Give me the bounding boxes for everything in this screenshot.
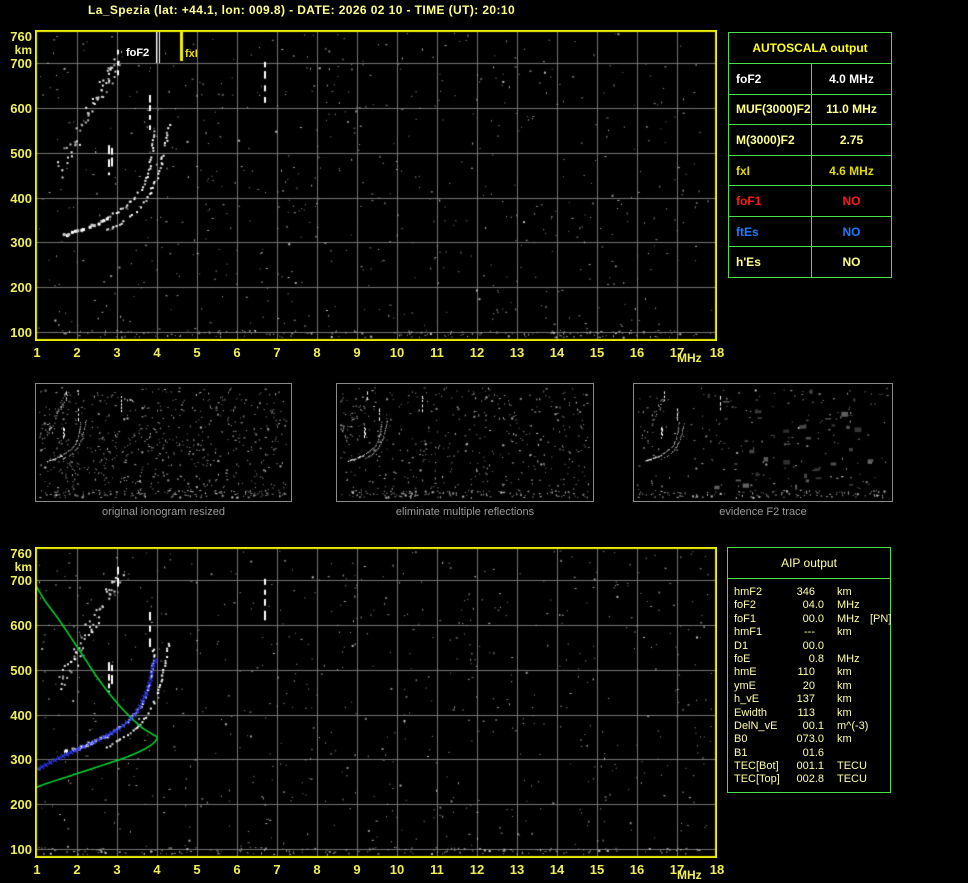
x-tick-top-14: 14 bbox=[545, 345, 569, 360]
aip-val: 002.8 bbox=[791, 773, 824, 786]
y-tick-top-600: 600 bbox=[0, 101, 32, 116]
x-tick-top-5: 5 bbox=[185, 345, 209, 360]
aip-row-B1: B101.6 bbox=[734, 747, 890, 760]
aip-lab: h_vE bbox=[734, 693, 791, 706]
x-tick-bottom-3: 3 bbox=[105, 862, 129, 877]
thumbnail-eliminate-reflections bbox=[336, 383, 594, 502]
aip-lab: ymE bbox=[734, 680, 791, 693]
x-tick-bottom-4: 4 bbox=[145, 862, 169, 877]
y-tick-top-100: 100 bbox=[0, 325, 32, 340]
autoscala-param-label: foF2 bbox=[729, 64, 812, 94]
thumbnail-evidence-canvas bbox=[634, 384, 892, 501]
aip-unit bbox=[824, 640, 868, 653]
autoscala-row-fxI: fxI4.6 MHz bbox=[729, 155, 891, 186]
autoscala-screen: La_Spezia (lat: +44.1, lon: 009.8) - DAT… bbox=[0, 0, 968, 883]
aip-val pad: 137 bbox=[791, 693, 824, 706]
x-tick-bottom-5: 5 bbox=[185, 862, 209, 877]
x-tick-top-9: 9 bbox=[345, 345, 369, 360]
autoscala-param-label: ftEs bbox=[729, 217, 812, 247]
thumbnail-original-ionogram bbox=[35, 383, 292, 502]
aip-lab: B1 bbox=[734, 747, 791, 760]
aip-unit: MHz bbox=[824, 599, 868, 612]
y-unit-bottom: km bbox=[0, 560, 32, 574]
y-tick-bottom-300: 300 bbox=[0, 752, 32, 767]
x-tick-bottom-13: 13 bbox=[505, 862, 529, 877]
x-tick-bottom-18: 18 bbox=[705, 862, 729, 877]
caption-evidence-f2: evidence F2 trace bbox=[633, 506, 893, 518]
autoscala-param-value: NO bbox=[812, 247, 891, 277]
y-tick-bottom-600: 600 bbox=[0, 618, 32, 633]
autoscala-param-value: 4.0 MHz bbox=[812, 64, 891, 94]
aip-row-TECTop: TEC[Top]002.8TECU bbox=[734, 773, 890, 786]
aip-unit: km bbox=[824, 586, 868, 599]
autoscala-output-panel: AUTOSCALA output foF24.0 MHzMUF(3000)F21… bbox=[728, 32, 892, 278]
autoscala-param-label: M(3000)F2 bbox=[729, 125, 812, 155]
aip-val: 00.0 bbox=[791, 640, 824, 653]
aip-row-Ewidth: Ewidth113km bbox=[734, 707, 890, 720]
aip-output-title: AIP output bbox=[728, 548, 890, 579]
thumbnail-evidence-f2 bbox=[633, 383, 893, 502]
ionogram-plot-canvas bbox=[35, 30, 717, 341]
aip-note: [PN] bbox=[868, 613, 891, 626]
aip-lab: hmF1 bbox=[734, 626, 791, 639]
aip-lab: Ewidth bbox=[734, 707, 791, 720]
autoscala-row-foF2: foF24.0 MHz bbox=[729, 63, 891, 94]
page-title: La_Spezia (lat: +44.1, lon: 009.8) - DAT… bbox=[88, 3, 515, 17]
autoscala-row-M3000F2: M(3000)F22.75 bbox=[729, 124, 891, 155]
aip-row-hmE: hmE110km bbox=[734, 666, 890, 679]
x-tick-bottom-16: 16 bbox=[625, 862, 649, 877]
x-tick-bottom-2: 2 bbox=[65, 862, 89, 877]
aip-row-hmF2: hmF2346km bbox=[734, 586, 890, 599]
aip-lab: hmE bbox=[734, 666, 791, 679]
aip-lab: foE bbox=[734, 653, 791, 666]
aip-val pad: --- bbox=[791, 626, 824, 639]
aip-row-foF2: foF204.0MHz bbox=[734, 599, 890, 612]
aip-output-panel: AIP output hmF2346kmfoF204.0MHzfoF100.0M… bbox=[727, 547, 891, 793]
autoscala-param-value: NO bbox=[812, 217, 891, 247]
autoscala-param-label: foF1 bbox=[729, 186, 812, 216]
thumbnail-original-canvas bbox=[36, 384, 291, 501]
aip-lab: TEC[Bot] bbox=[734, 760, 791, 773]
foF2-marker-label: foF2 bbox=[126, 47, 149, 59]
aip-unit: km bbox=[824, 680, 868, 693]
y-tick-top-700: 700 bbox=[0, 56, 32, 71]
aip-unit: TECU bbox=[824, 773, 868, 786]
aip-unit: MHz bbox=[824, 613, 868, 626]
y-tick-bottom-700: 700 bbox=[0, 573, 32, 588]
y-tick-bottom-100: 100 bbox=[0, 842, 32, 857]
aip-lab: DelN_vE bbox=[734, 720, 791, 733]
autoscala-row-MUF3000F2: MUF(3000)F211.0 MHz bbox=[729, 94, 891, 125]
aip-unit: m^(-3) bbox=[824, 720, 868, 733]
aip-row-B0: B0073.0km bbox=[734, 733, 890, 746]
x-tick-top-1: 1 bbox=[25, 345, 49, 360]
y-tick-bottom-400: 400 bbox=[0, 708, 32, 723]
x-tick-top-13: 13 bbox=[505, 345, 529, 360]
caption-original-ionogram: original ionogram resized bbox=[35, 506, 292, 518]
aip-val: 00.0 bbox=[791, 613, 824, 626]
aip-val: 001.1 bbox=[791, 760, 824, 773]
aip-val pad: 110 bbox=[791, 666, 824, 679]
aip-lab: TEC[Top] bbox=[734, 773, 791, 786]
x-tick-bottom-7: 7 bbox=[265, 862, 289, 877]
autoscala-param-value: 4.6 MHz bbox=[812, 156, 891, 186]
aip-val: 073.0 bbox=[791, 733, 824, 746]
x-unit-top: MHz bbox=[677, 351, 701, 365]
x-tick-top-2: 2 bbox=[65, 345, 89, 360]
y-unit-top: km bbox=[0, 43, 32, 57]
x-tick-top-7: 7 bbox=[265, 345, 289, 360]
x-tick-bottom-14: 14 bbox=[545, 862, 569, 877]
aip-unit: km bbox=[824, 707, 868, 720]
autoscala-param-label: MUF(3000)F2 bbox=[729, 95, 812, 125]
x-tick-bottom-9: 9 bbox=[345, 862, 369, 877]
y-tick-top-400: 400 bbox=[0, 191, 32, 206]
x-tick-bottom-8: 8 bbox=[305, 862, 329, 877]
x-tick-top-3: 3 bbox=[105, 345, 129, 360]
autoscala-output-title: AUTOSCALA output bbox=[729, 33, 891, 63]
x-tick-top-8: 8 bbox=[305, 345, 329, 360]
aip-lab: foF2 bbox=[734, 599, 791, 612]
aip-unit: MHz bbox=[824, 653, 868, 666]
x-tick-bottom-1: 1 bbox=[25, 862, 49, 877]
aip-row-foF1: foF100.0MHz[PN] bbox=[734, 613, 890, 626]
aip-unit: km bbox=[824, 626, 868, 639]
aip-unit: km bbox=[824, 733, 868, 746]
aip-row-DelNvE: DelN_vE00.1m^(-3) bbox=[734, 720, 890, 733]
aip-val: 00.1 bbox=[791, 720, 824, 733]
aip-val: 01.6 bbox=[791, 747, 824, 760]
aip-rows: hmF2346kmfoF204.0MHzfoF100.0MHz[PN]hmF1-… bbox=[728, 579, 890, 787]
x-unit-bottom: MHz bbox=[677, 868, 701, 882]
x-tick-top-11: 11 bbox=[425, 345, 449, 360]
aip-val pad: 346 bbox=[791, 586, 824, 599]
autoscala-rows: foF24.0 MHzMUF(3000)F211.0 MHzM(3000)F22… bbox=[729, 63, 891, 277]
autoscala-param-value: 11.0 MHz bbox=[812, 95, 891, 125]
x-tick-top-4: 4 bbox=[145, 345, 169, 360]
aip-row-ymE: ymE20km bbox=[734, 680, 890, 693]
x-tick-top-15: 15 bbox=[585, 345, 609, 360]
autoscala-param-value: NO bbox=[812, 186, 891, 216]
aip-val pad: 20 bbox=[791, 680, 824, 693]
x-tick-bottom-10: 10 bbox=[385, 862, 409, 877]
autoscala-row-ftEs: ftEsNO bbox=[729, 216, 891, 247]
aip-row-D1: D100.0 bbox=[734, 640, 890, 653]
aip-row-hmF1: hmF1---km bbox=[734, 626, 890, 639]
aip-lab: B0 bbox=[734, 733, 791, 746]
y-tick-bottom-500: 500 bbox=[0, 663, 32, 678]
autoscala-param-label: fxI bbox=[729, 156, 812, 186]
y-tick-top-200: 200 bbox=[0, 280, 32, 295]
caption-eliminate-reflections: eliminate multiple reflections bbox=[336, 506, 594, 518]
aip-unit bbox=[824, 747, 868, 760]
aip-unit: TECU bbox=[824, 760, 868, 773]
autoscala-param-label: h'Es bbox=[729, 247, 812, 277]
x-tick-bottom-6: 6 bbox=[225, 862, 249, 877]
y-tick-top-500: 500 bbox=[0, 146, 32, 161]
x-tick-bottom-12: 12 bbox=[465, 862, 489, 877]
x-tick-bottom-11: 11 bbox=[425, 862, 449, 877]
y-tick-bottom-200: 200 bbox=[0, 797, 32, 812]
aip-unit: km bbox=[824, 666, 868, 679]
autoscala-param-value: 2.75 bbox=[812, 125, 891, 155]
profile-plot-canvas bbox=[35, 547, 717, 858]
autoscala-row-hEs: h'EsNO bbox=[729, 246, 891, 277]
aip-val: 04.0 bbox=[791, 599, 824, 612]
aip-lab: foF1 bbox=[734, 613, 791, 626]
y-tick-top-300: 300 bbox=[0, 235, 32, 250]
aip-lab: D1 bbox=[734, 640, 791, 653]
x-tick-top-10: 10 bbox=[385, 345, 409, 360]
x-tick-bottom-15: 15 bbox=[585, 862, 609, 877]
x-tick-top-6: 6 bbox=[225, 345, 249, 360]
aip-val: 0.8 bbox=[791, 653, 824, 666]
aip-val pad: 113 bbox=[791, 707, 824, 720]
aip-unit: km bbox=[824, 693, 868, 706]
x-tick-top-18: 18 bbox=[705, 345, 729, 360]
aip-row-TECBot: TEC[Bot]001.1TECU bbox=[734, 760, 890, 773]
x-tick-top-12: 12 bbox=[465, 345, 489, 360]
x-tick-top-16: 16 bbox=[625, 345, 649, 360]
aip-row-hvE: h_vE137km bbox=[734, 693, 890, 706]
fxI-marker-label: fxI bbox=[185, 48, 198, 60]
aip-lab: hmF2 bbox=[734, 586, 791, 599]
aip-row-foE: foE0.8MHz bbox=[734, 653, 890, 666]
thumbnail-eliminate-canvas bbox=[337, 384, 593, 501]
autoscala-row-foF1: foF1NO bbox=[729, 185, 891, 216]
